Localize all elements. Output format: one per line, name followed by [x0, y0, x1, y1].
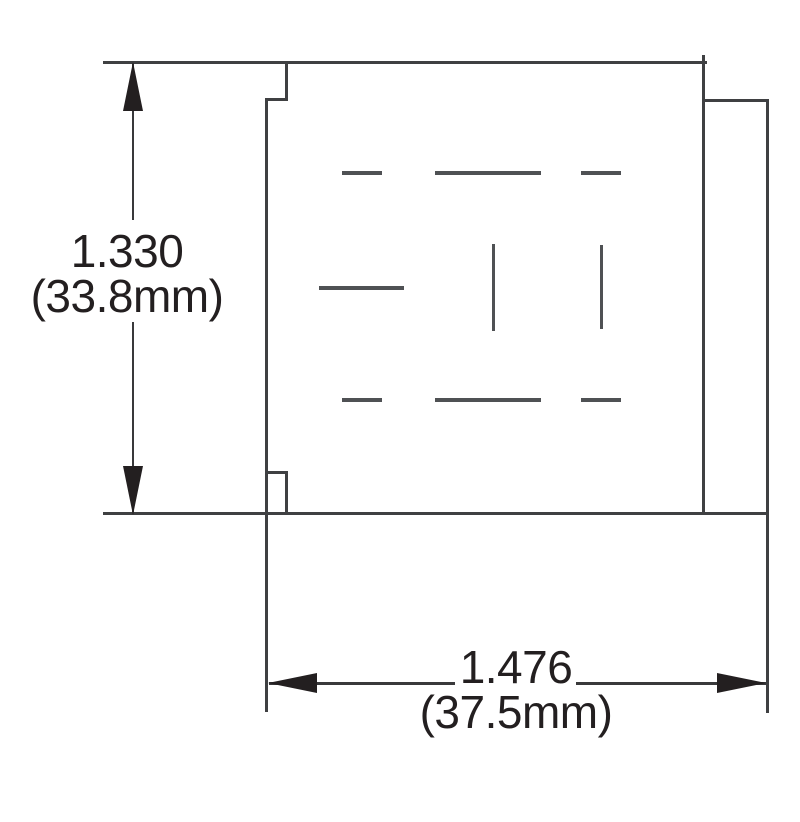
body-bottom-edge: [103, 512, 769, 515]
body-left-edge: [265, 98, 268, 514]
terminal-slot-bottom-right: [581, 398, 621, 402]
right-flange-top-edge: [702, 99, 769, 102]
right-arrowhead-icon: [717, 673, 766, 693]
terminal-slot-bottom-center: [435, 398, 541, 402]
horizontal-dimension-label: 1.476 (37.5mm): [396, 645, 636, 735]
right-extension-line: [766, 514, 769, 713]
down-arrowhead-icon: [123, 466, 143, 515]
right-flange-right-edge: [766, 99, 769, 514]
key-tab-right-edge: [285, 471, 288, 514]
left-step-horizontal-edge: [265, 98, 288, 101]
left-step-vertical-edge: [285, 61, 288, 101]
dimension-drawing: 1.330 (33.8mm) 1.476 (37.5mm): [0, 0, 800, 822]
terminal-slot-top-right: [581, 171, 621, 175]
terminal-slot-middle-left: [319, 286, 404, 290]
horizontal-dimension-inches: 1.476: [396, 645, 636, 690]
body-right-edge: [702, 61, 705, 514]
terminal-slot-bottom-left: [342, 398, 382, 402]
vertical-dimension-label: 1.330 (33.8mm): [7, 229, 247, 319]
terminal-slot-top-center: [435, 171, 541, 175]
terminal-slot-top-left: [342, 171, 382, 175]
vertical-dimension-metric: (33.8mm): [7, 274, 247, 319]
terminal-slot-middle-vertical-2: [600, 245, 603, 329]
horizontal-dimension-metric: (37.5mm): [396, 690, 636, 735]
left-arrowhead-icon: [268, 673, 317, 693]
terminal-slot-middle-vertical-1: [492, 244, 495, 331]
up-arrowhead-icon: [123, 62, 143, 111]
vertical-dimension-inches: 1.330: [7, 229, 247, 274]
body-top-edge: [103, 61, 707, 64]
